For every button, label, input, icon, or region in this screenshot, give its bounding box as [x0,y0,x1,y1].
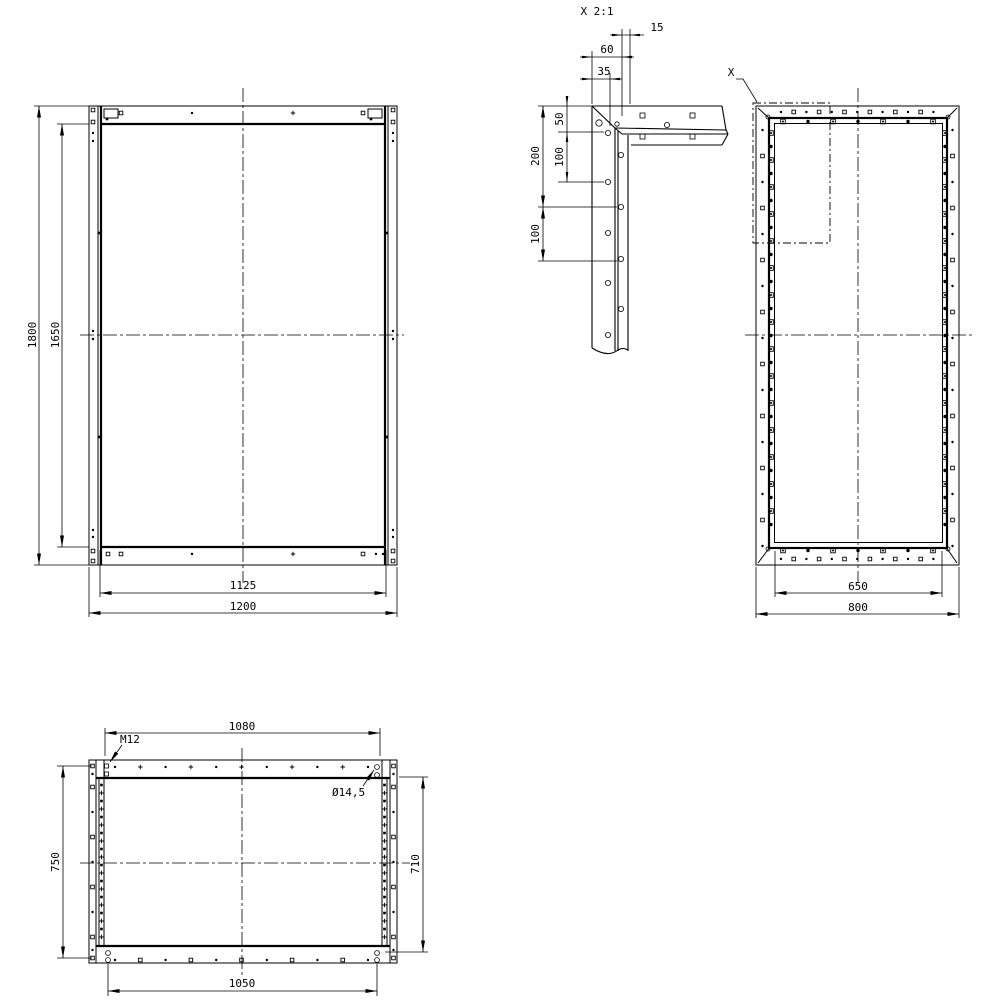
dim-detail-15: 15 [650,21,663,34]
dim-front-height-outer: 1800 [26,322,39,349]
top-view: 1080 M12 Ø14,5 750 710 1050 [49,720,428,996]
thread-callout-leader [110,745,122,762]
dim-detail-200: 200 [529,146,542,166]
dim-detail-100-lower: 100 [529,224,542,244]
dim-top-width-bottom: 1050 [229,977,256,990]
dim-detail-60: 60 [600,43,613,56]
d14-hole [106,951,111,956]
detail-view: X 2:1 [529,5,728,354]
technical-drawing: 1800 1650 1125 1200 X 650 800 X 2:1 [0,0,1000,1000]
front-top-left-cutout [104,109,118,118]
dim-top-width-top: 1080 [229,720,256,733]
dim-side-width-inner: 650 [848,580,868,593]
dim-detail-35: 35 [597,65,610,78]
front-top-right-cutout [368,109,382,118]
d14-hole [375,765,380,770]
thread-callout-label: M12 [120,733,140,746]
dim-front-width-inner: 1125 [230,579,257,592]
fastener-marks [91,108,955,962]
dim-side-width-outer: 800 [848,601,868,614]
detail-marker-label: X [728,66,735,79]
dim-front-height-inner: 1650 [49,322,62,349]
d14-hole [375,958,380,963]
m12-hole [105,764,109,768]
dim-detail-100-upper: 100 [553,147,566,167]
cad-drawing-sheet: 1800 1650 1125 1200 X 650 800 X 2:1 [0,0,1000,1000]
d14-hole [375,773,380,778]
side-outer-frame [756,106,959,565]
dim-top-height-left: 750 [49,852,62,872]
dim-detail-50: 50 [553,112,566,125]
d14-hole [375,951,380,956]
d14-hole [106,958,111,963]
m12-hole [105,772,109,776]
side-view: X 650 800 [728,66,975,618]
front-view: 1800 1650 1125 1200 [26,88,404,617]
detail-marker-leader [736,79,757,102]
side-inner-frame-thin [775,124,943,543]
dim-top-height-right: 710 [409,854,422,874]
detail-view-title: X 2:1 [580,5,613,18]
break-line [592,348,628,354]
dim-front-width-outer: 1200 [230,600,257,613]
hole-callout-label: Ø14,5 [332,786,365,799]
